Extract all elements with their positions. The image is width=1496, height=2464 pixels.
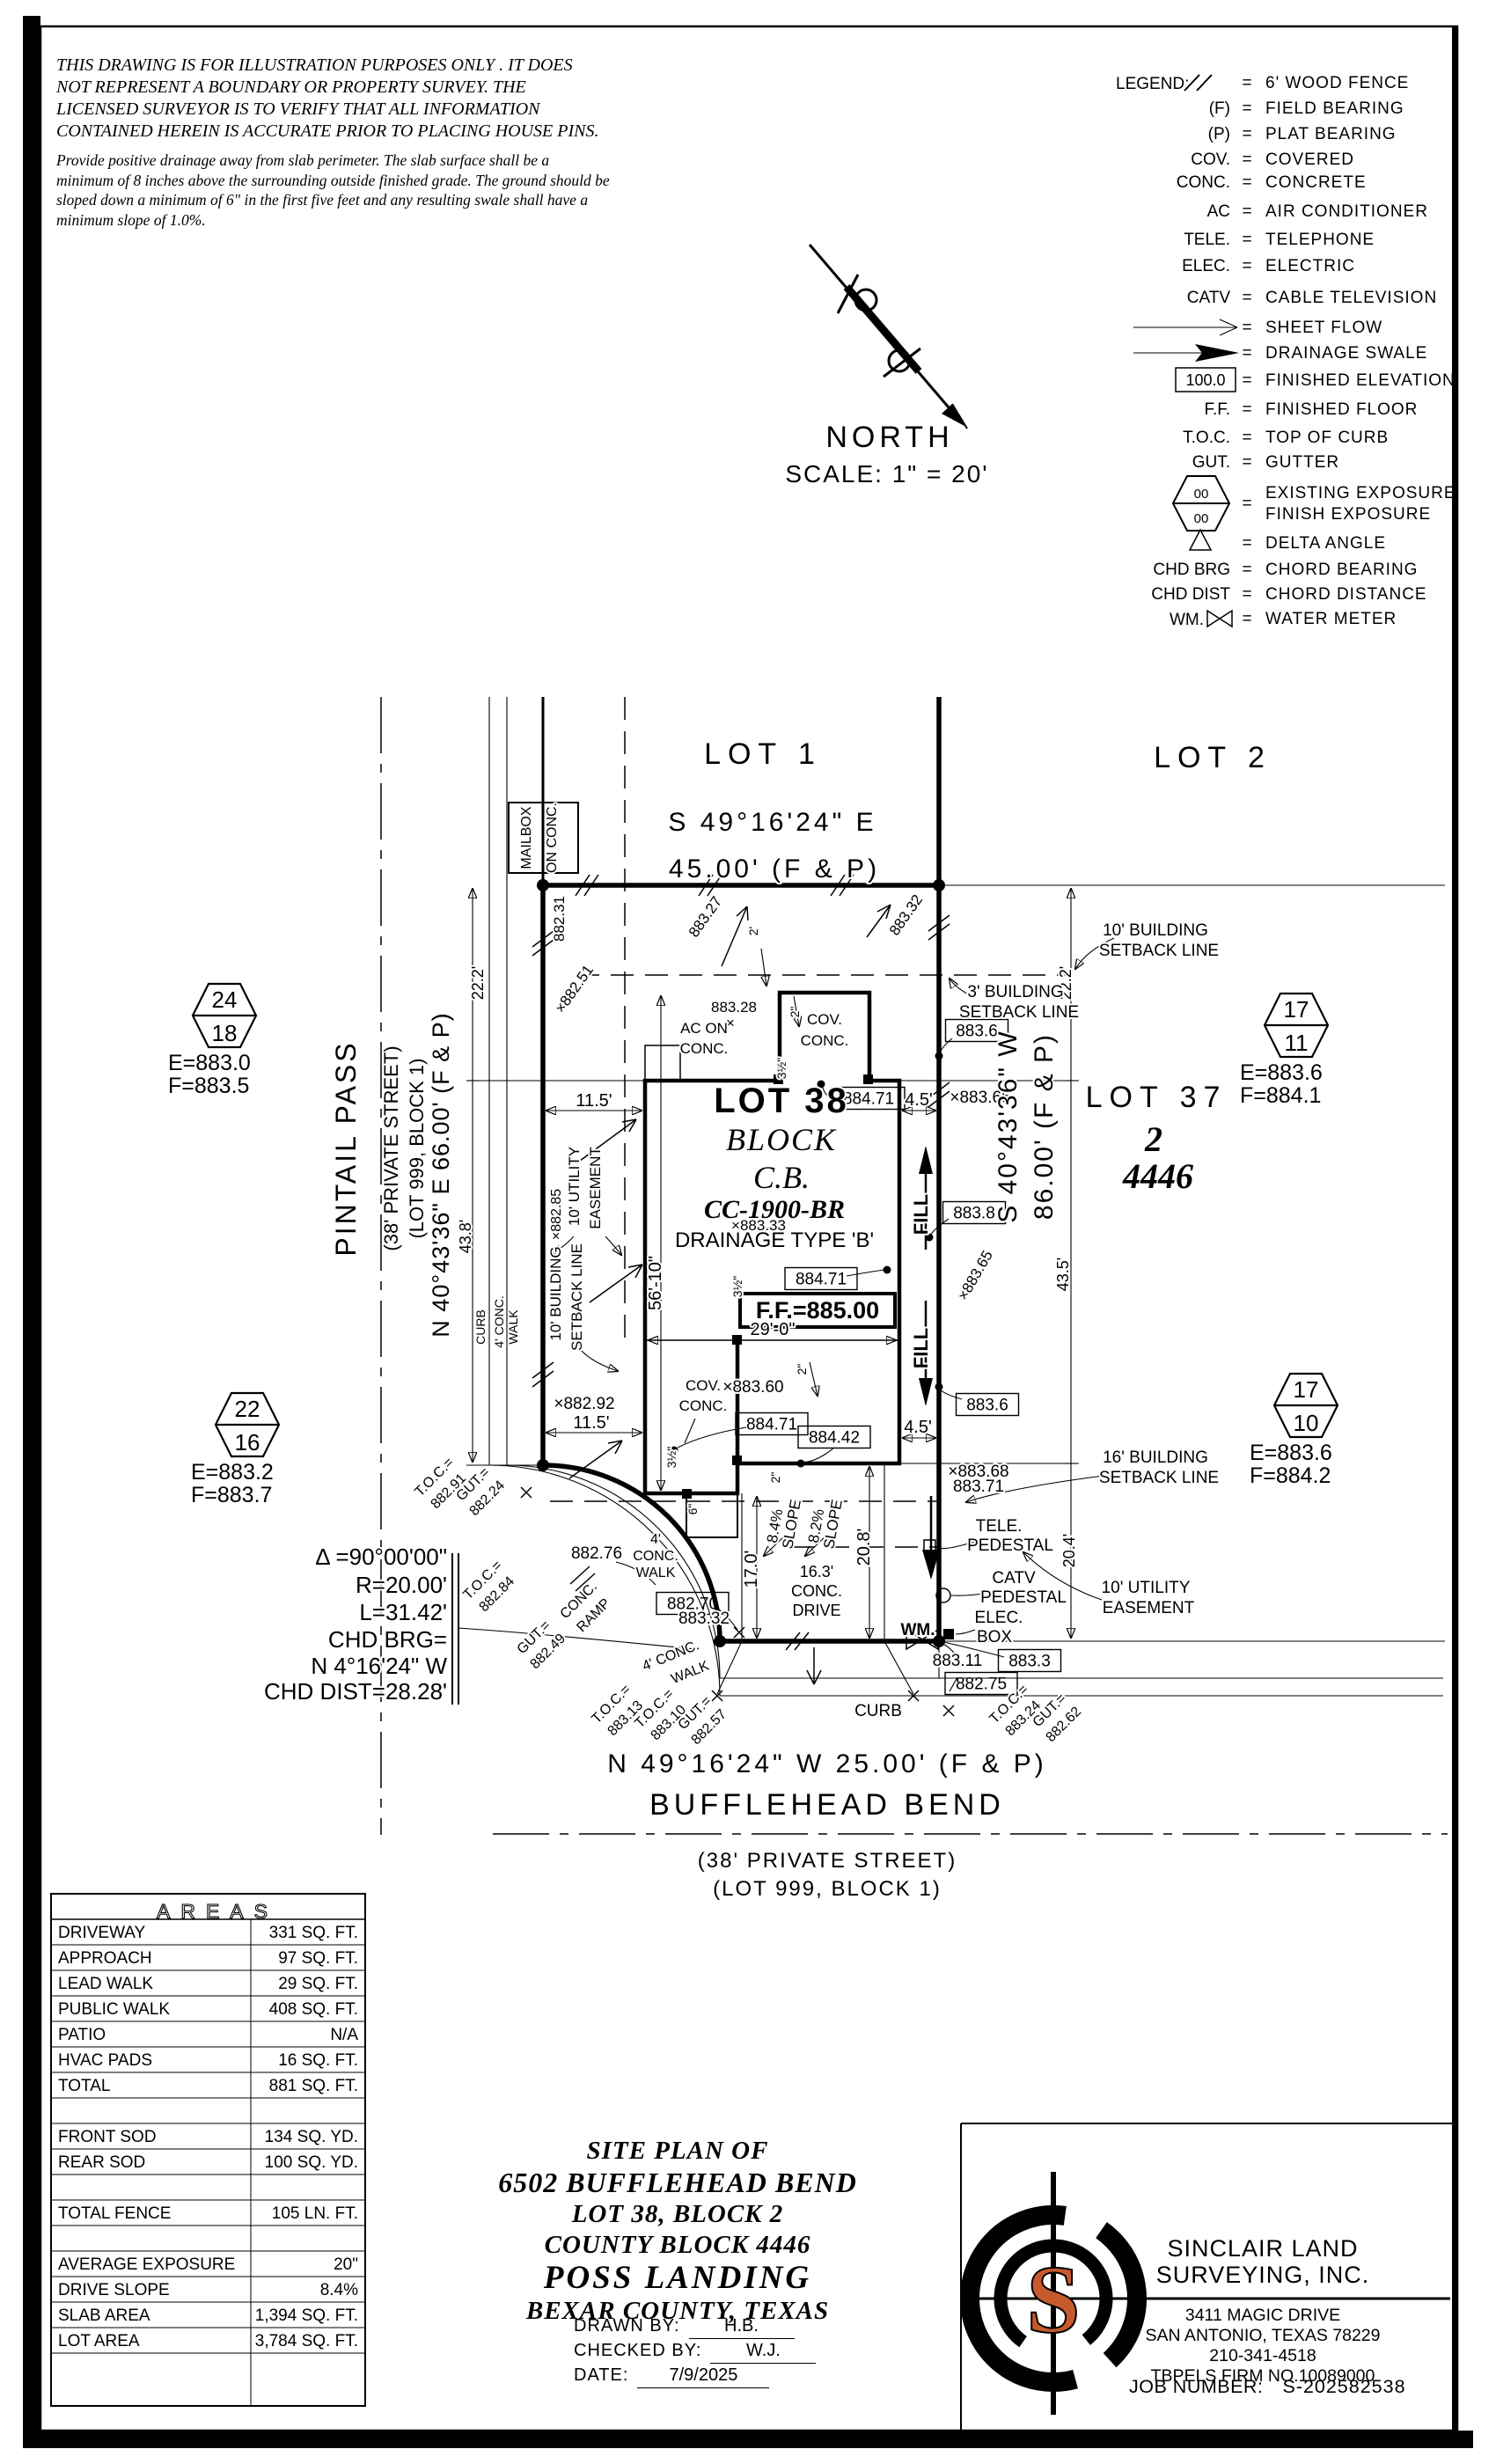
plan-label: 6" (686, 1504, 700, 1515)
legend-desc: ELECTRIC (1265, 257, 1355, 275)
table-row-label: HVAC PADS (58, 2051, 152, 2070)
legend-equals: = (1242, 561, 1251, 579)
plan-label: EASEMENT (587, 1147, 604, 1229)
disclaimer-line: NOT REPRESENT A BOUNDARY OR PROPERTY SUR… (56, 77, 549, 99)
elevation-box-label: 884.71 (843, 1089, 894, 1108)
plan-label: COV. (807, 1011, 842, 1028)
plan-label: N 40°43'36" E 66.00' (F & P) (428, 1012, 454, 1337)
legend-equals: = (1242, 257, 1251, 275)
legend-desc: DELTA ANGLE (1265, 534, 1386, 553)
legend-desc: WATER METER (1265, 610, 1397, 628)
table-row-label: PUBLIC WALK (58, 2000, 170, 2019)
table-row-label: DRIVEWAY (58, 1924, 146, 1942)
areas-table-rows: DRIVEWAY331 SQ. FT.APPROACH97 SQ. FT.LEA… (51, 1919, 365, 2406)
plan-label: 56'-10" (646, 1256, 665, 1310)
legend-equals: = (1242, 371, 1251, 390)
areas-table-title: AREAS (157, 1900, 278, 1923)
title-line: POSS LANDING (449, 2261, 906, 2296)
legend-hex-bottom: 00 (1194, 511, 1209, 526)
table-row-value: 16 SQ. FT. (278, 2051, 358, 2070)
plan-label: 43.5' (1054, 1258, 1072, 1291)
plan-label: S 49°16'24" E (668, 808, 876, 837)
house (645, 993, 899, 1537)
plan-label: WM. (900, 1621, 935, 1639)
legend-desc: 6' WOOD FENCE (1265, 74, 1409, 92)
plan-label: CONC. (801, 1032, 849, 1049)
legend-equals: = (1242, 344, 1251, 363)
water-meter-icon (1207, 611, 1220, 627)
plan-label: 2" (768, 1472, 782, 1484)
plan-label: 22.2' (469, 966, 487, 1000)
table-row-value: 408 SQ. FT. (269, 2000, 358, 2019)
plan-label: EASEMENT (1103, 1599, 1195, 1617)
legend-rows: =6' WOOD FENCE(F)=FIELD BEARING(P)=PLAT … (1151, 74, 1456, 628)
plan-label: SETBACK LINE (568, 1243, 585, 1351)
legend-desc: PLAT BEARING (1265, 125, 1397, 143)
existing-exposure-value: 17 (1294, 1376, 1319, 1403)
table-row-label: DRIVE SLOPE (58, 2281, 170, 2299)
plan-label: ×883.65 (955, 1248, 996, 1303)
plan-label: ON CONC. (545, 803, 560, 873)
legend-desc: CHORD BEARING (1265, 561, 1418, 579)
existing-exposure-value: 17 (1284, 996, 1309, 1023)
porch-post (732, 1456, 742, 1465)
plan-label: R=20.00' (356, 1572, 447, 1598)
checked-by-row: CHECKED BY:W.J. (574, 2339, 816, 2364)
table-row-label: LEAD WALK (58, 1975, 153, 1993)
finish-exposure-value: 16 (235, 1429, 260, 1456)
existing-elevation: E=883.2 (191, 1460, 274, 1485)
firm-address: 3411 MAGIC DRIVESAN ANTONIO, TEXAS 78229… (1104, 2306, 1421, 2387)
plan-label: C.B. (753, 1160, 810, 1195)
legend-symbol: F.F. (1204, 400, 1230, 419)
date-value: 7/9/2025 (637, 2364, 769, 2388)
legend-symbol: AC (1207, 202, 1230, 221)
plan-label: 43.8' (457, 1220, 474, 1253)
firm-name-line: SURVEYING, INC. (1148, 2262, 1377, 2288)
disclaimer-note-line: sloped down a minimum of 6" in the first… (56, 190, 549, 210)
plan-label: 11.5' (573, 1413, 609, 1433)
firm-address-line: SAN ANTONIO, TEXAS 78229 (1104, 2326, 1421, 2346)
plan-label: LOT 1 (704, 737, 822, 771)
table-row-value: 3,784 SQ. FT. (255, 2332, 358, 2350)
plan-label: MAILBOX (519, 806, 534, 869)
plan-label: CONC. (680, 1040, 729, 1057)
plan-label: 883.32 (886, 891, 926, 938)
plan-label: 882.31 (551, 896, 568, 942)
plan-label: WALK (636, 1566, 676, 1580)
elevation-box-label: 883.6 (966, 1396, 1008, 1414)
plan-label: WALK (506, 1309, 520, 1345)
firm-address-line: 210-341-4518 (1104, 2346, 1421, 2366)
date-row: DATE:7/9/2025 (574, 2364, 816, 2388)
legend-box-value: 100.0 (1185, 371, 1225, 389)
title-line: LOT 38, BLOCK 2 (449, 2199, 906, 2230)
finish-elevation: F=883.7 (191, 1483, 272, 1507)
plan-label: 10' UTILITY (1102, 1579, 1191, 1597)
disclaimer-note-line: minimum of 8 inches above the surroundin… (56, 171, 549, 191)
finish-exposure-value: 11 (1285, 1030, 1309, 1056)
legend-symbol: ELEC. (1182, 257, 1230, 275)
plan-label: CHD BRG= (328, 1626, 447, 1653)
plan-label: ×883.60 (722, 1378, 783, 1397)
ac-pad (645, 1045, 680, 1081)
date-label: DATE: (574, 2365, 628, 2385)
drawn-by-value: H.B. (689, 2314, 795, 2339)
plan-label: 10' BUILDING (547, 1246, 564, 1340)
plan-label: Δ =90°00'00" (315, 1544, 447, 1570)
legend-desc: CHORD DISTANCE (1265, 585, 1427, 604)
plan-label: CONC. (679, 1397, 728, 1414)
table-row-value: 881 SQ. FT. (269, 2077, 358, 2095)
table-row-value: 134 SQ. YD. (265, 2128, 358, 2146)
plan-label: 29'-0" (751, 1320, 796, 1339)
plan-label: 4446 (1122, 1156, 1193, 1196)
table-row-label: LOT AREA (58, 2332, 140, 2350)
plan-label: SETBACK LINE (1099, 942, 1219, 960)
job-number-label: JOB NUMBER: (1129, 2376, 1263, 2397)
legend-desc: CONCRETE (1265, 173, 1367, 192)
plan-label: 883.32 (678, 1610, 730, 1628)
legend-symbol: T.O.C. (1183, 429, 1230, 447)
plan-label: 883.28 (711, 999, 757, 1016)
table-row-label: PATIO (58, 2026, 106, 2044)
firm-address-line: 3411 MAGIC DRIVE (1104, 2306, 1421, 2326)
plan-label: 4' CONC. (492, 1295, 506, 1347)
finish-exposure-value: 10 (1294, 1410, 1319, 1436)
existing-exposure-value: 22 (235, 1396, 260, 1422)
plan-label: (LOT 999, BLOCK 1) (406, 1058, 428, 1238)
sheet: 100.0 00 00 WM. =6' WOOD FENCE(F)=FIELD … (0, 0, 1496, 2464)
drawn-by-row: DRAWN BY:H.B. (574, 2314, 816, 2339)
existing-elevation: E=883.6 (1240, 1060, 1323, 1085)
disclaimer-note-line: Provide positive drainage away from slab… (56, 150, 549, 171)
plan-label: BOX (977, 1628, 1012, 1646)
title-line: COUNTY BLOCK 4446 (449, 2230, 906, 2261)
legend-equals: = (1242, 534, 1251, 553)
legend-equals: = (1242, 74, 1251, 92)
elevation-box-label: 883.6 (956, 1022, 998, 1040)
existing-exposure-value: 24 (212, 986, 238, 1013)
legend-equals: = (1242, 585, 1251, 604)
legend-symbol: CHD BRG (1153, 561, 1230, 579)
table-row-value: 105 LN. FT. (272, 2204, 358, 2223)
plan-label: 16.3' (800, 1563, 833, 1580)
plan-label: AC ON (680, 1020, 728, 1037)
legend-symbol: CONC. (1177, 173, 1230, 192)
plan-label: PEDESTAL (980, 1588, 1067, 1607)
plan-label: 11.5' (576, 1091, 612, 1111)
table-row-label: TOTAL FENCE (58, 2204, 171, 2223)
disclaimer-line: THIS DRAWING IS FOR ILLUSTRATION PURPOSE… (56, 55, 549, 77)
plan-label: N 49°16'24" W 25.00' (F & P) (607, 1749, 1047, 1778)
firm-job: JOB NUMBER:S-202582538 (1129, 2376, 1406, 2398)
plan-label: 2" (788, 1007, 802, 1018)
table-row-value: 100 SQ. YD. (265, 2153, 358, 2172)
legend-desc: EXISTING EXPOSURE (1265, 484, 1456, 502)
table-row-value: 331 SQ. FT. (269, 1924, 358, 1942)
legend-symbol: (P) (1208, 125, 1230, 143)
table-row-label: FRONT SOD (58, 2128, 157, 2146)
site-plan: 884.71883.6883.8884.71F.F.=885.00884.718… (168, 697, 1448, 1901)
elevation-box-label: 884.71 (796, 1270, 847, 1288)
existing-elevation: E=883.6 (1250, 1441, 1332, 1465)
fence-hatches (532, 875, 950, 1650)
table-row-label: REAR SOD (58, 2153, 145, 2172)
plan-label: PINTAIL PASS (330, 1040, 362, 1256)
legend-desc: CABLE TELEVISION (1265, 289, 1437, 307)
firm-name-line: SINCLAIR LAND (1148, 2235, 1377, 2262)
plan-label: 883.27 (686, 893, 725, 940)
legend-equals: = (1242, 453, 1251, 472)
plan-label: 20.4' (1060, 1534, 1078, 1567)
plan-label: LOT 37 (1086, 1081, 1228, 1114)
legend-equals: = (1242, 150, 1251, 169)
plan-label: 17.0' (742, 1551, 761, 1588)
plan-label: PEDESTAL (967, 1536, 1053, 1555)
plan-label: 883.11 (933, 1652, 983, 1670)
legend-desc: AIR CONDITIONER (1265, 202, 1428, 221)
elevation-box-label: 884.71 (746, 1415, 797, 1434)
elevation-box-label: 883.3 (1008, 1652, 1051, 1670)
plan-label: 45.00' (F & P) (669, 854, 880, 884)
plan-label: 10' BUILDING (1103, 921, 1208, 940)
plan-label: 20.8' (854, 1529, 874, 1566)
table-row-label: TOTAL (58, 2077, 110, 2095)
legend-equals: = (1242, 400, 1251, 419)
title-block: SITE PLAN OF6502 BUFFLEHEAD BENDLOT 38, … (449, 2135, 906, 2326)
elevation-box-label: 882.75 (956, 1675, 1007, 1693)
plan-label: 4' (650, 1532, 661, 1547)
legend-desc: FINISHED ELEVATION (1265, 371, 1456, 390)
plan-label: CATV (992, 1569, 1036, 1588)
finish-elevation: F=884.2 (1250, 1463, 1331, 1488)
legend-desc: SHEET FLOW (1265, 319, 1382, 337)
legend-equals: = (1242, 495, 1251, 513)
plan-label: 4.5' (905, 1090, 933, 1110)
legend-equals: = (1242, 125, 1251, 143)
legend-title: LEGEND: (1116, 75, 1189, 93)
legend-symbol: (F) (1209, 99, 1230, 118)
elevation-box-label: 884.42 (809, 1428, 860, 1447)
legend-wm-sym: WM. (1170, 611, 1204, 629)
legend-equals: = (1242, 610, 1251, 628)
title-line: SITE PLAN OF (449, 2135, 906, 2167)
table-row-label: SLAB AREA (58, 2306, 150, 2325)
checked-by-label: CHECKED BY: (574, 2341, 701, 2360)
plan-label: CHD DIST=28.28' (264, 1678, 447, 1705)
signature-block: DRAWN BY:H.B. CHECKED BY:W.J. DATE:7/9/2… (574, 2314, 816, 2388)
areas-table: DRIVEWAY331 SQ. FT.APPROACH97 SQ. FT.LEA… (51, 1894, 365, 2406)
plan-label: L=31.42' (359, 1599, 447, 1625)
legend-hex-top: 00 (1194, 487, 1209, 502)
checked-by-value: W.J. (710, 2339, 816, 2364)
porch-post (863, 1074, 873, 1084)
legend-equals: = (1242, 429, 1251, 447)
firm-name: SINCLAIR LANDSURVEYING, INC. (1148, 2235, 1377, 2288)
drawn-by-label: DRAWN BY: (574, 2316, 680, 2336)
lot-boundary (509, 697, 1445, 1650)
legend-equals: = (1242, 202, 1251, 221)
legend-symbol: CATV (1187, 289, 1231, 307)
plan-label: CONC. (633, 1549, 678, 1564)
plan-label: SETBACK LINE (959, 1003, 1079, 1022)
plan-label: LOT 38 (714, 1082, 849, 1120)
elevation-box-label: 883.8 (953, 1204, 995, 1222)
table-row-value: 29 SQ. FT. (278, 1975, 358, 1993)
plan-label: BUFFLEHEAD BEND (649, 1788, 1005, 1822)
legend-desc: TOP OF CURB (1265, 429, 1389, 447)
job-number-value: S-202582538 (1282, 2376, 1405, 2397)
plan-label: SLOPE (779, 1498, 804, 1550)
plan-label: BLOCK (726, 1122, 837, 1157)
table-row-value: 97 SQ. FT. (278, 1949, 358, 1968)
delta-icon (1190, 530, 1211, 550)
plan-label: 2' (746, 927, 760, 935)
legend-equals: = (1242, 173, 1251, 192)
legend-symbol: TELE. (1184, 231, 1230, 249)
plan-label: 16' BUILDING (1103, 1448, 1208, 1467)
plan-label: ×882.92 (554, 1395, 614, 1413)
legend-desc: FINISHED FLOOR (1265, 400, 1418, 419)
legend-symbol: GUT. (1192, 453, 1230, 472)
logo-letter: S (1026, 2246, 1080, 2353)
plan-label: WALK (669, 1658, 711, 1687)
elec-box-icon (943, 1629, 954, 1639)
plan-label: ×882.85 (549, 1189, 564, 1240)
plan-label: 883.71 (953, 1478, 1004, 1496)
plan-label: SLOPE (820, 1498, 846, 1550)
porch-post (682, 1489, 692, 1499)
legend-equals: = (1242, 99, 1251, 118)
table-row-value: N/A (330, 2026, 358, 2044)
plan-label: 2 (1144, 1119, 1162, 1159)
plan-label: CONC. (791, 1582, 842, 1600)
scale-label: SCALE: 1" = 20' (785, 460, 988, 488)
legend-symbol: CHD DIST (1151, 585, 1230, 604)
legend-equals: = (1242, 289, 1251, 307)
plan-label: CURB (854, 1702, 902, 1720)
plan-label: ×882.51 (552, 962, 597, 1016)
plan-label: 3½" (730, 1276, 744, 1297)
legend-desc: FINISH EXPOSURE (1265, 505, 1431, 524)
table-row-value: 8.4% (320, 2281, 358, 2299)
table-row-label: APPROACH (58, 1949, 152, 1968)
plan-label: ELEC. (975, 1609, 1023, 1627)
existing-elevation: E=883.0 (168, 1051, 251, 1075)
plan-label: 86.00' (F & P) (1030, 1033, 1059, 1220)
plan-label: FILL (910, 1328, 932, 1368)
plan-label: LOT 2 (1154, 741, 1272, 774)
table-row-value: 1,394 SQ. FT. (255, 2306, 358, 2325)
table-row-value: 20" (334, 2255, 358, 2274)
disclaimer-note-line: minimum slope of 1.0%. (56, 210, 549, 231)
finish-exposure-value: 18 (212, 1020, 238, 1046)
legend-desc: TELEPHONE (1265, 231, 1375, 249)
title-line: 6502 BUFFLEHEAD BEND (449, 2167, 906, 2199)
finish-elevation: F=884.1 (1240, 1083, 1321, 1108)
north-label: NORTH (825, 421, 953, 454)
table-row-label: AVERAGE EXPOSURE (58, 2255, 235, 2274)
plan-label: (LOT 999, BLOCK 1) (713, 1877, 942, 1901)
plan-label: CURB (473, 1309, 488, 1345)
finish-elevation: F=883.5 (168, 1074, 249, 1098)
plan-label: 3½" (774, 1058, 788, 1079)
legend-desc: FIELD BEARING (1265, 99, 1404, 118)
plan-label: 10' UTILITY (566, 1147, 583, 1226)
plan-label: DRIVE (792, 1602, 840, 1619)
legend-symbol: COV. (1191, 150, 1230, 169)
plan-label: FILL (910, 1194, 932, 1235)
drawing-svg: 100.0 00 00 WM. =6' WOOD FENCE(F)=FIELD … (0, 0, 1496, 2464)
porch-post (732, 1335, 742, 1345)
north-arrow (810, 245, 967, 429)
plan-label: DRAINAGE TYPE 'B' (675, 1228, 874, 1252)
legend-equals: = (1242, 319, 1251, 337)
plan-label: 2" (795, 1364, 809, 1375)
plan-label: S 40°43'36" W (994, 1030, 1023, 1222)
plan-label: 3' BUILDING (967, 983, 1063, 1001)
legend-desc: GUTTER (1265, 453, 1339, 472)
disclaimer: THIS DRAWING IS FOR ILLUSTRATION PURPOSE… (56, 55, 549, 230)
plan-label: (38' PRIVATE STREET) (380, 1045, 402, 1250)
legend-desc: DRAINAGE SWALE (1265, 344, 1427, 363)
legend-equals: = (1242, 231, 1251, 249)
plan-label: SETBACK LINE (1099, 1469, 1219, 1487)
disclaimer-line: CONTAINED HEREIN IS ACCURATE PRIOR TO PL… (56, 121, 549, 143)
plan-label: COV. (686, 1377, 721, 1394)
plan-label: 3½" (664, 1447, 678, 1468)
plan-label: (38' PRIVATE STREET) (698, 1849, 957, 1873)
plan-label: 4.5' (904, 1418, 932, 1437)
disclaimer-line: LICENSED SURVEYOR IS TO VERIFY THAT ALL … (56, 99, 549, 121)
legend-desc: COVERED (1265, 150, 1354, 169)
plan-label: N 4°16'24" W (311, 1653, 447, 1679)
plan-label: TELE. (976, 1517, 1023, 1536)
plan-label: 882.76 (571, 1544, 622, 1563)
